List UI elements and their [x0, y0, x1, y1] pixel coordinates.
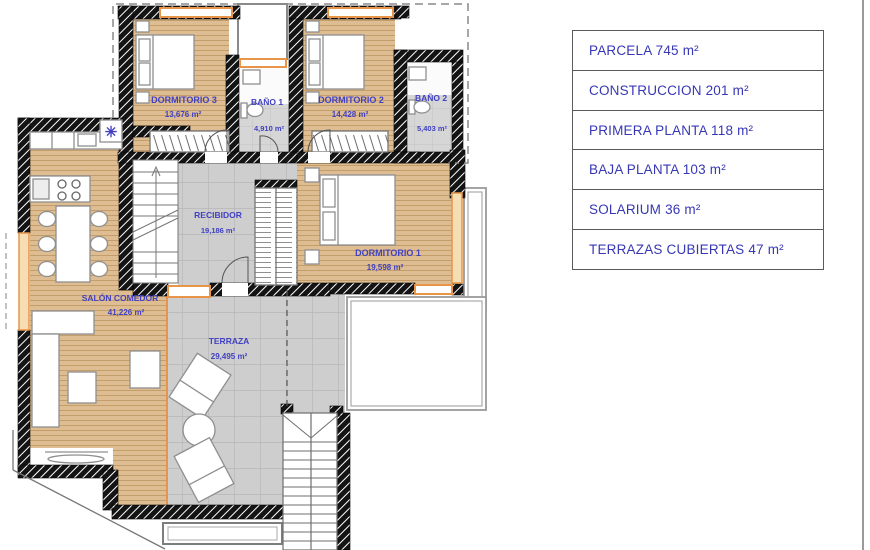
bano-1-label: BAÑO 1	[251, 97, 283, 107]
window	[452, 193, 462, 283]
wall	[255, 180, 297, 188]
legend-row-parcela: PARCELA 745 m²	[573, 31, 823, 71]
window	[415, 285, 452, 294]
pillow	[139, 63, 150, 85]
page-edge-line	[862, 0, 864, 550]
floor-plan-page: ✳ DORMITORIO 3 13,676 m² BAÑO 1 4,910 m²	[0, 0, 870, 550]
legend-text: BAJA PLANTA 103 m²	[589, 162, 726, 177]
recibidor-label: RECIBIDOR	[194, 210, 242, 220]
pillow	[309, 39, 320, 61]
wall	[330, 283, 415, 294]
dormitorio-3-label: DORMITORIO 3	[151, 95, 217, 105]
closet	[150, 131, 229, 152]
door-gap	[222, 283, 248, 296]
legend-row-terrazas: TERRAZAS CUBIERTAS 47 m²	[573, 230, 823, 269]
kitchen-sink	[78, 134, 96, 146]
wall	[337, 413, 350, 550]
coffee-table	[68, 372, 96, 403]
nightstand	[305, 250, 319, 264]
salon-comedor-area: 41,226 m²	[108, 308, 145, 317]
chair	[91, 262, 108, 277]
door-gap	[260, 152, 278, 163]
light-well	[238, 4, 287, 59]
wall	[112, 505, 290, 519]
interior-stairs	[133, 160, 178, 283]
chair	[91, 237, 108, 252]
planter	[163, 523, 282, 544]
area-summary-table: PARCELA 745 m² CONSTRUCCION 201 m² PRIME…	[572, 30, 824, 270]
wall	[289, 19, 303, 155]
bano-2-label: BAÑO 2	[415, 93, 447, 103]
window	[328, 8, 393, 17]
floors	[30, 18, 452, 505]
chair	[91, 212, 108, 227]
toilet-tank	[241, 103, 247, 118]
legend-text: PRIMERA PLANTA 118 m²	[589, 123, 753, 138]
chair	[39, 237, 56, 252]
wall	[450, 150, 465, 198]
exterior-stairs	[283, 413, 338, 550]
door-gap	[205, 152, 227, 163]
recibidor-area: 19,186 m²	[201, 226, 236, 235]
sofa-chaise	[32, 334, 59, 427]
window	[240, 59, 286, 67]
closet	[312, 131, 388, 152]
dormitorio-2-label: DORMITORIO 2	[318, 95, 384, 105]
wall	[452, 284, 463, 295]
pillow	[139, 39, 150, 61]
window	[160, 8, 232, 17]
dormitorio-3-area: 13,676 m²	[165, 110, 202, 119]
chair	[39, 212, 56, 227]
nightstand	[136, 21, 149, 32]
wall	[18, 465, 113, 478]
dormitorio-1-area: 19,598 m²	[367, 263, 404, 272]
armchair	[130, 351, 160, 388]
legend-row-solarium: SOLARIUM 36 m²	[573, 190, 823, 230]
sink	[409, 67, 426, 80]
wall	[18, 118, 30, 233]
wall	[452, 62, 463, 155]
legend-row-primera-planta: PRIMERA PLANTA 118 m²	[573, 111, 823, 151]
door-gap	[308, 152, 330, 163]
terraza-area: 29,495 m²	[211, 352, 248, 361]
nightstand	[306, 92, 319, 103]
pillow	[323, 212, 335, 240]
pillow	[309, 63, 320, 85]
sofa	[32, 311, 94, 334]
terraza-label: TERRAZA	[209, 336, 250, 346]
bano-1-area: 4,910 m²	[254, 124, 285, 133]
legend-text: TERRAZAS CUBIERTAS 47 m²	[589, 242, 784, 257]
legend-row-baja-planta: BAJA PLANTA 103 m²	[573, 150, 823, 190]
balcony-right	[464, 188, 486, 310]
dormitorio-1-label: DORMITORIO 1	[355, 248, 421, 258]
dining-table	[56, 206, 90, 282]
legend-text: PARCELA 745 m²	[589, 43, 699, 58]
balcony-bottom	[347, 297, 486, 410]
salon-comedor-label: SALÓN COMEDOR	[82, 292, 159, 303]
nightstand	[305, 168, 319, 182]
legend-text: CONSTRUCCION 201 m²	[589, 83, 749, 98]
wall	[396, 6, 409, 18]
legend-row-construccion: CONSTRUCCION 201 m²	[573, 71, 823, 111]
sink	[243, 70, 260, 84]
nightstand	[136, 92, 149, 103]
sliding-door	[168, 286, 210, 297]
wall	[103, 470, 118, 510]
legend-text: SOLARIUM 36 m²	[589, 202, 701, 217]
window	[19, 233, 29, 330]
chair	[39, 262, 56, 277]
nightstand	[306, 21, 319, 32]
salon-floor-strip	[113, 288, 167, 505]
wall	[18, 330, 30, 472]
dormitorio-2-area: 14,428 m²	[332, 110, 369, 119]
tv	[48, 455, 104, 463]
island-sink	[33, 179, 49, 199]
wall	[394, 50, 407, 155]
bano-2-area: 5,403 m²	[417, 124, 448, 133]
pillow	[323, 179, 335, 207]
extractor-fan-icon: ✳	[105, 124, 118, 141]
